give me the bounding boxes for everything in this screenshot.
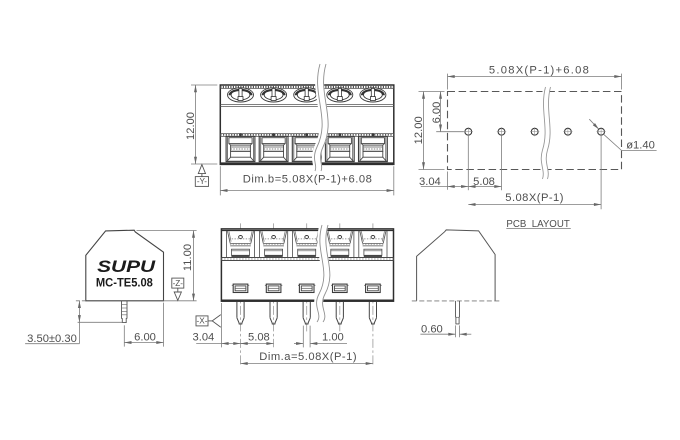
svg-text:1.00: 1.00 — [322, 331, 344, 343]
svg-text:Dim.b=5.08X(P-1)+6.08: Dim.b=5.08X(P-1)+6.08 — [243, 174, 373, 186]
svg-text:3.50±0.30: 3.50±0.30 — [27, 333, 77, 345]
svg-text:SUPU: SUPU — [97, 257, 156, 276]
svg-text:5.08: 5.08 — [248, 331, 270, 343]
svg-text:12.00: 12.00 — [185, 112, 197, 140]
svg-text:0.60: 0.60 — [421, 323, 443, 335]
svg-text:-Y-: -Y- — [197, 177, 207, 186]
svg-text:Dim.a=5.08X(P-1): Dim.a=5.08X(P-1) — [259, 351, 357, 363]
svg-text:-Z-: -Z- — [173, 279, 184, 288]
svg-text:5.08X(P-1)+6.08: 5.08X(P-1)+6.08 — [489, 64, 590, 76]
svg-text:ø1.40: ø1.40 — [626, 140, 655, 152]
svg-text:12.00: 12.00 — [413, 116, 425, 144]
svg-text:-X-: -X- — [197, 317, 208, 326]
svg-text:3.04: 3.04 — [193, 331, 215, 343]
svg-text:11.00: 11.00 — [182, 244, 194, 271]
svg-text:3.04: 3.04 — [419, 176, 441, 188]
svg-text:MC-TE5.08: MC-TE5.08 — [96, 276, 153, 290]
svg-text:5.08X(P-1): 5.08X(P-1) — [505, 192, 564, 204]
svg-text:6.00: 6.00 — [431, 102, 443, 124]
svg-text:6.00: 6.00 — [134, 332, 156, 344]
svg-text:5.08: 5.08 — [473, 176, 495, 188]
